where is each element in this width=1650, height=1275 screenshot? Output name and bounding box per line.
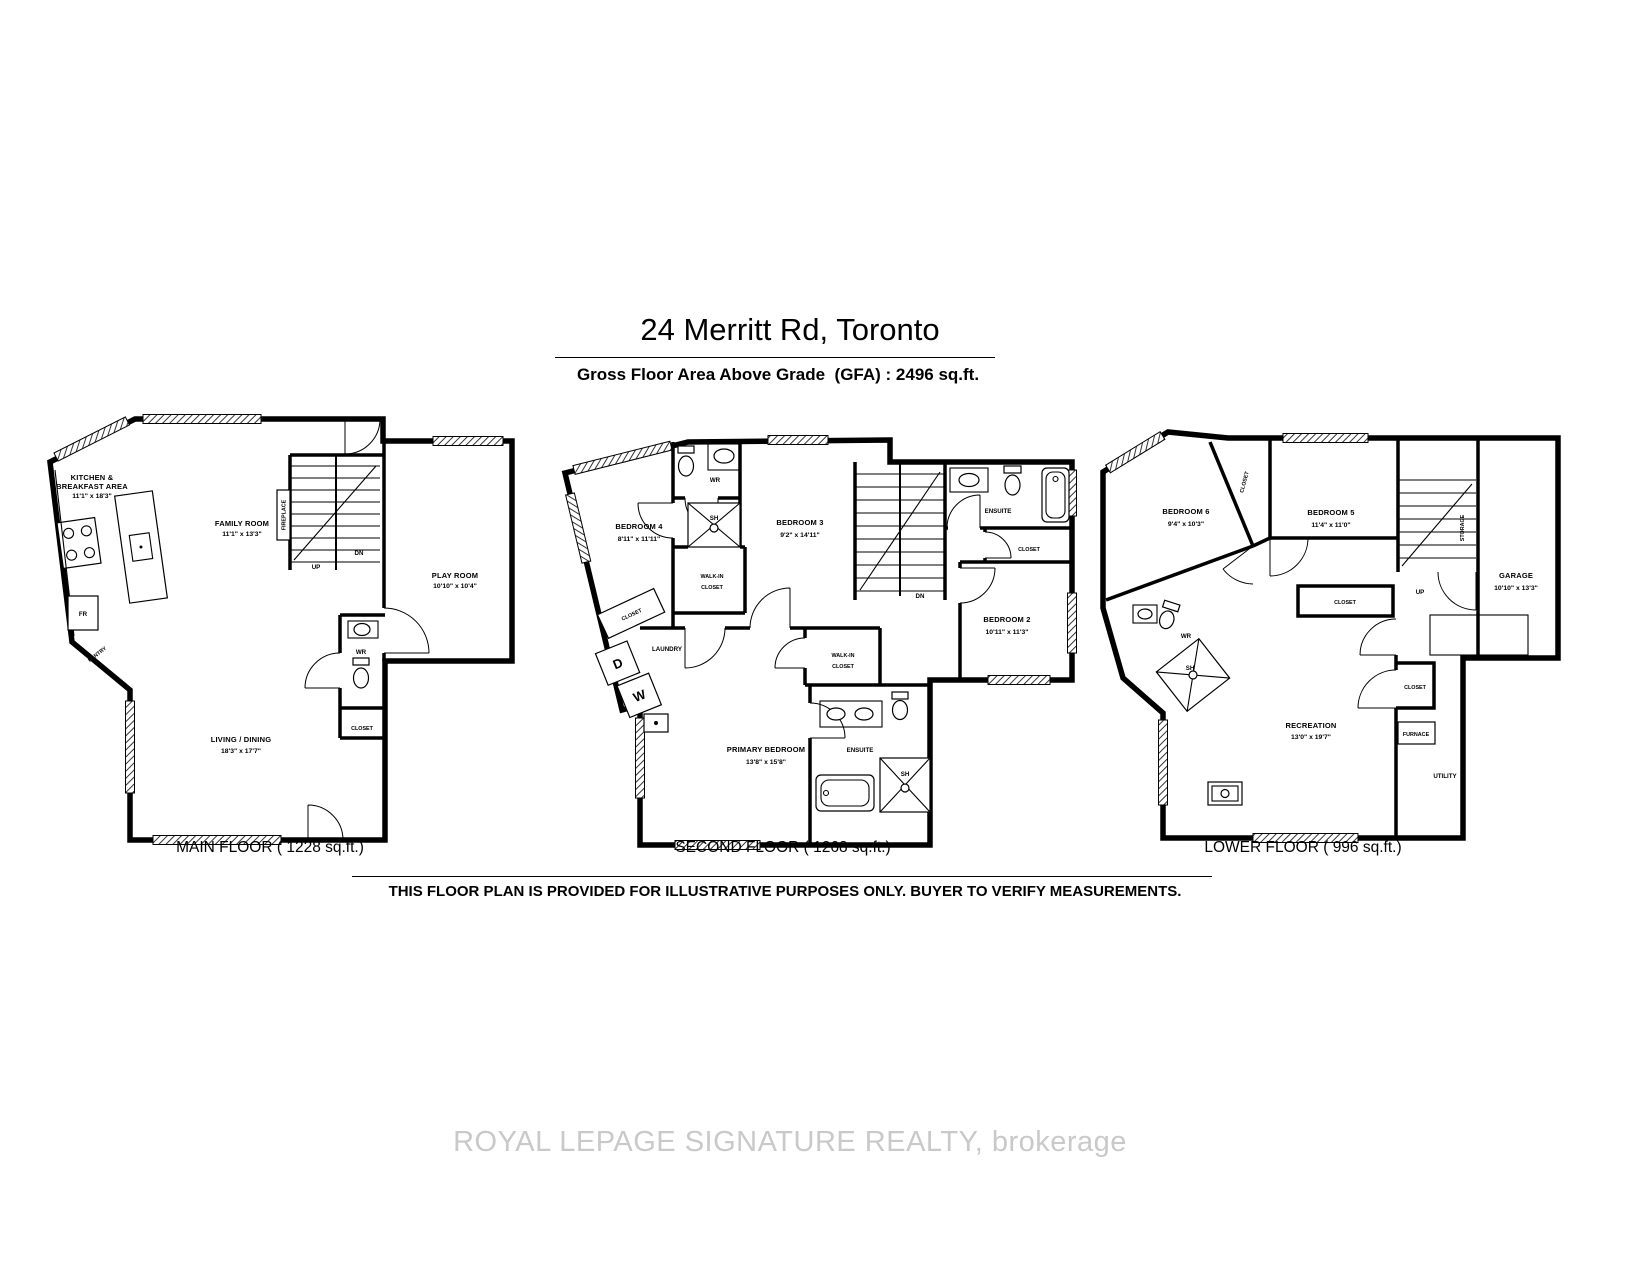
label-bedroom5: BEDROOM 5 xyxy=(1307,508,1354,517)
label-living-dining-dims: 18'3" x 17'7" xyxy=(221,748,261,755)
shower-icon xyxy=(880,758,930,812)
label-up: UP xyxy=(312,564,321,571)
label-bedroom4-dims: 8'11" x 11'11" xyxy=(618,536,661,543)
label-sh: SH xyxy=(1186,665,1195,672)
floor-plan-page: 24 Merritt Rd, Toronto Gross Floor Area … xyxy=(0,0,1650,1275)
label-closet: CLOSET xyxy=(351,726,374,732)
label-wr: WR xyxy=(710,477,721,484)
label-closet-mid: CLOSET xyxy=(1404,685,1427,691)
caption-main-floor: MAIN FLOOR ( 1228 sq.ft.) xyxy=(176,839,364,857)
label-bedroom3-dims: 9'2" x 14'11" xyxy=(780,532,820,539)
label-laundry: LAUNDRY xyxy=(652,646,683,653)
label-primary-bedroom-dims: 13'8" x 15'8" xyxy=(746,759,786,766)
label-ensuite: ENSUITE xyxy=(847,747,874,754)
label-sh-top: SH xyxy=(710,515,719,522)
window xyxy=(988,676,1050,685)
label-storage: STORAGE xyxy=(1460,514,1466,541)
brokerage-watermark: ROYAL LEPAGE SIGNATURE REALTY, brokerage xyxy=(453,1126,1127,1159)
title-divider xyxy=(555,357,995,358)
window xyxy=(1159,720,1168,805)
label-fr: FR xyxy=(79,611,88,618)
label-walkin: WALK-IN xyxy=(831,653,854,659)
main-floor-plan: KITCHEN & BREAKFAST AREA 11'1" x 18'3" F… xyxy=(40,408,522,853)
label-walkin-2: CLOSET xyxy=(832,664,855,670)
label-play-room: PLAY ROOM xyxy=(432,571,478,580)
label-bedroom6-dims: 9'4" x 10'3" xyxy=(1168,521,1204,528)
exterior-walls xyxy=(1103,432,1558,838)
bathtub-icon xyxy=(816,775,874,811)
label-dn: DN xyxy=(355,550,364,557)
lower-floor-plan: BEDROOM 6 9'4" x 10'3" CLOSET BEDROOM 5 … xyxy=(1048,408,1564,853)
label-walkin-top: WALK-IN xyxy=(700,574,723,580)
label-bedroom5-dims: 11'4" x 11'0" xyxy=(1311,522,1350,529)
label-bedroom2-dims: 10'11" x 11'3" xyxy=(986,629,1029,636)
label-kitchen: KITCHEN & xyxy=(71,473,114,482)
label-play-room-dims: 10'10" x 10'4" xyxy=(433,583,477,590)
label-sh: SH xyxy=(901,771,910,778)
shower-icon xyxy=(688,503,740,547)
caption-lower-floor: LOWER FLOOR ( 996 sq.ft.) xyxy=(1204,839,1401,857)
disclaimer-divider xyxy=(352,876,1212,877)
label-recreation: RECREATION xyxy=(1285,721,1336,730)
window xyxy=(1283,434,1368,443)
label-kitchen-dims: 11'1" x 18'3" xyxy=(72,493,112,500)
caption-second-floor: SECOND FLOOR ( 1268 sq.ft.) xyxy=(675,839,890,857)
toilet-icon xyxy=(678,446,694,476)
gfa-subtitle: Gross Floor Area Above Grade (GFA) : 249… xyxy=(577,365,979,385)
label-garage-dims: 10'10" x 13'3" xyxy=(1494,585,1538,592)
label-bedroom6: BEDROOM 6 xyxy=(1162,507,1209,516)
label-closet-hall: CLOSET xyxy=(1334,600,1357,606)
label-ensuite-top: ENSUITE xyxy=(985,508,1012,515)
window xyxy=(433,437,503,446)
fireplace-icon xyxy=(1208,782,1242,805)
label-fireplace: FIREPLACE xyxy=(282,499,288,530)
label-utility: UTILITY xyxy=(1433,773,1457,780)
label-bedroom4: BEDROOM 4 xyxy=(615,522,663,531)
label-wr: WR xyxy=(1181,633,1192,640)
label-bedroom2: BEDROOM 2 xyxy=(983,615,1030,624)
label-living-dining: LIVING / DINING xyxy=(211,735,272,744)
label-up: UP xyxy=(1416,589,1425,596)
second-floor-plan: CLOSET D W xyxy=(540,408,1100,853)
label-wr: WR xyxy=(356,649,367,656)
label-primary-bedroom: PRIMARY BEDROOM xyxy=(727,745,805,754)
label-bedroom3: BEDROOM 3 xyxy=(776,518,823,527)
label-walkin-top-2: CLOSET xyxy=(701,585,724,591)
label-garage: GARAGE xyxy=(1499,571,1533,580)
toilet-icon xyxy=(1004,466,1021,495)
laundry-sink-icon xyxy=(644,714,668,732)
label-dn: DN xyxy=(916,593,925,600)
label-family-room: FAMILY ROOM xyxy=(215,519,269,528)
label-closet-top: CLOSET xyxy=(1018,547,1041,553)
label-furnace: FURNACE xyxy=(1403,732,1430,738)
label-family-room-dims: 11'1" x 13'3" xyxy=(222,531,262,538)
label-recreation-dims: 13'0" x 19'7" xyxy=(1291,734,1331,741)
toilet-icon xyxy=(892,692,908,720)
window xyxy=(636,718,645,798)
page-title: 24 Merritt Rd, Toronto xyxy=(640,312,939,348)
window xyxy=(143,415,261,424)
window xyxy=(768,436,828,445)
label-kitchen-2: BREAKFAST AREA xyxy=(56,482,128,491)
disclaimer-text: THIS FLOOR PLAN IS PROVIDED FOR ILLUSTRA… xyxy=(389,883,1182,900)
toilet-icon xyxy=(353,658,369,688)
window xyxy=(126,701,135,793)
